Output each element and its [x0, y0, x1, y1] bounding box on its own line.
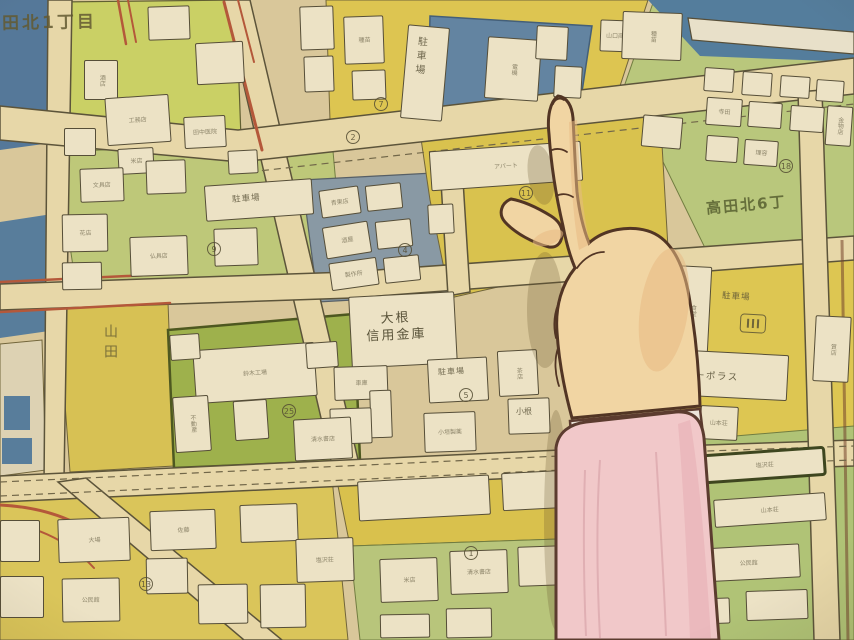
anime-frame: 酒店工務店米店田中医院種苗電機山口商店種苗寺田金物店理容文具店花店仏具店青果店酒…: [0, 0, 854, 640]
pointing-hand-and-arm: [0, 0, 854, 640]
